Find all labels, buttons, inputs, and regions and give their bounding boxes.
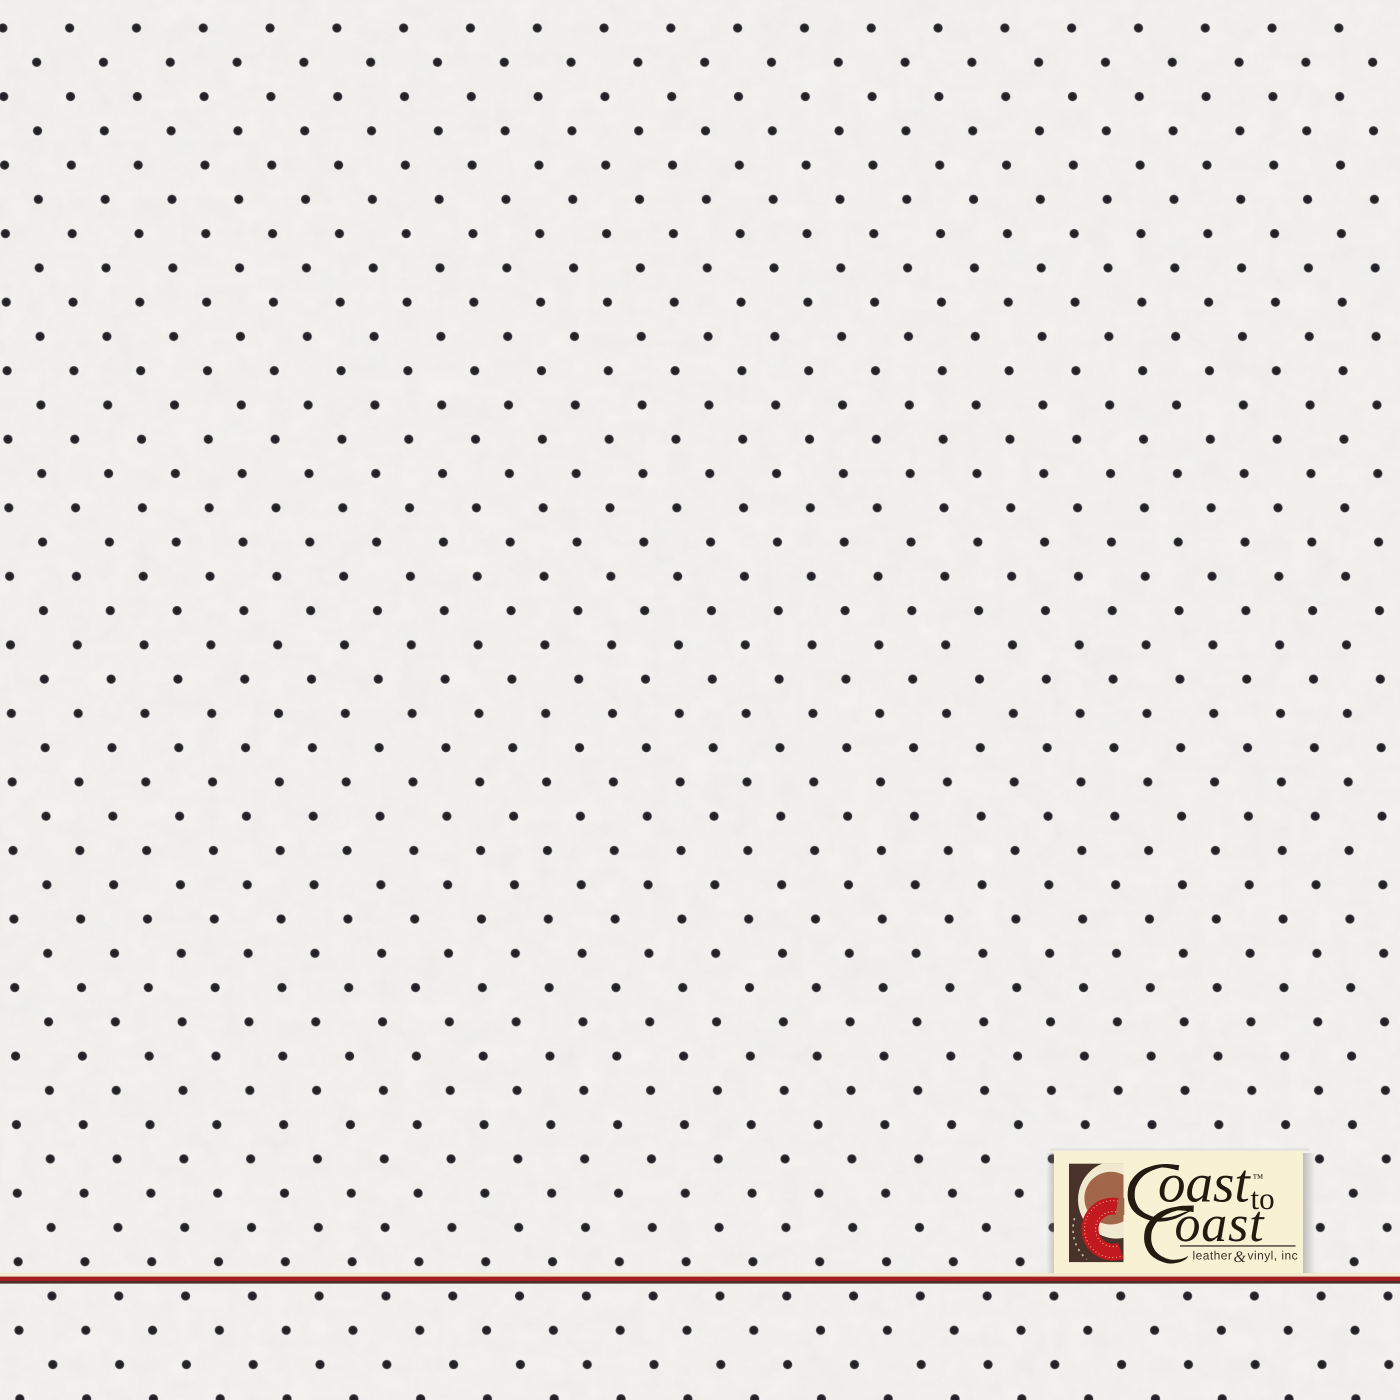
svg-text:™: ™ — [1253, 1172, 1264, 1184]
svg-text:to: to — [1251, 1181, 1275, 1216]
svg-text:&: & — [1234, 1249, 1247, 1266]
svg-text:leather: leather — [1193, 1249, 1233, 1263]
svg-text:vinyl, inc: vinyl, inc — [1248, 1249, 1299, 1263]
